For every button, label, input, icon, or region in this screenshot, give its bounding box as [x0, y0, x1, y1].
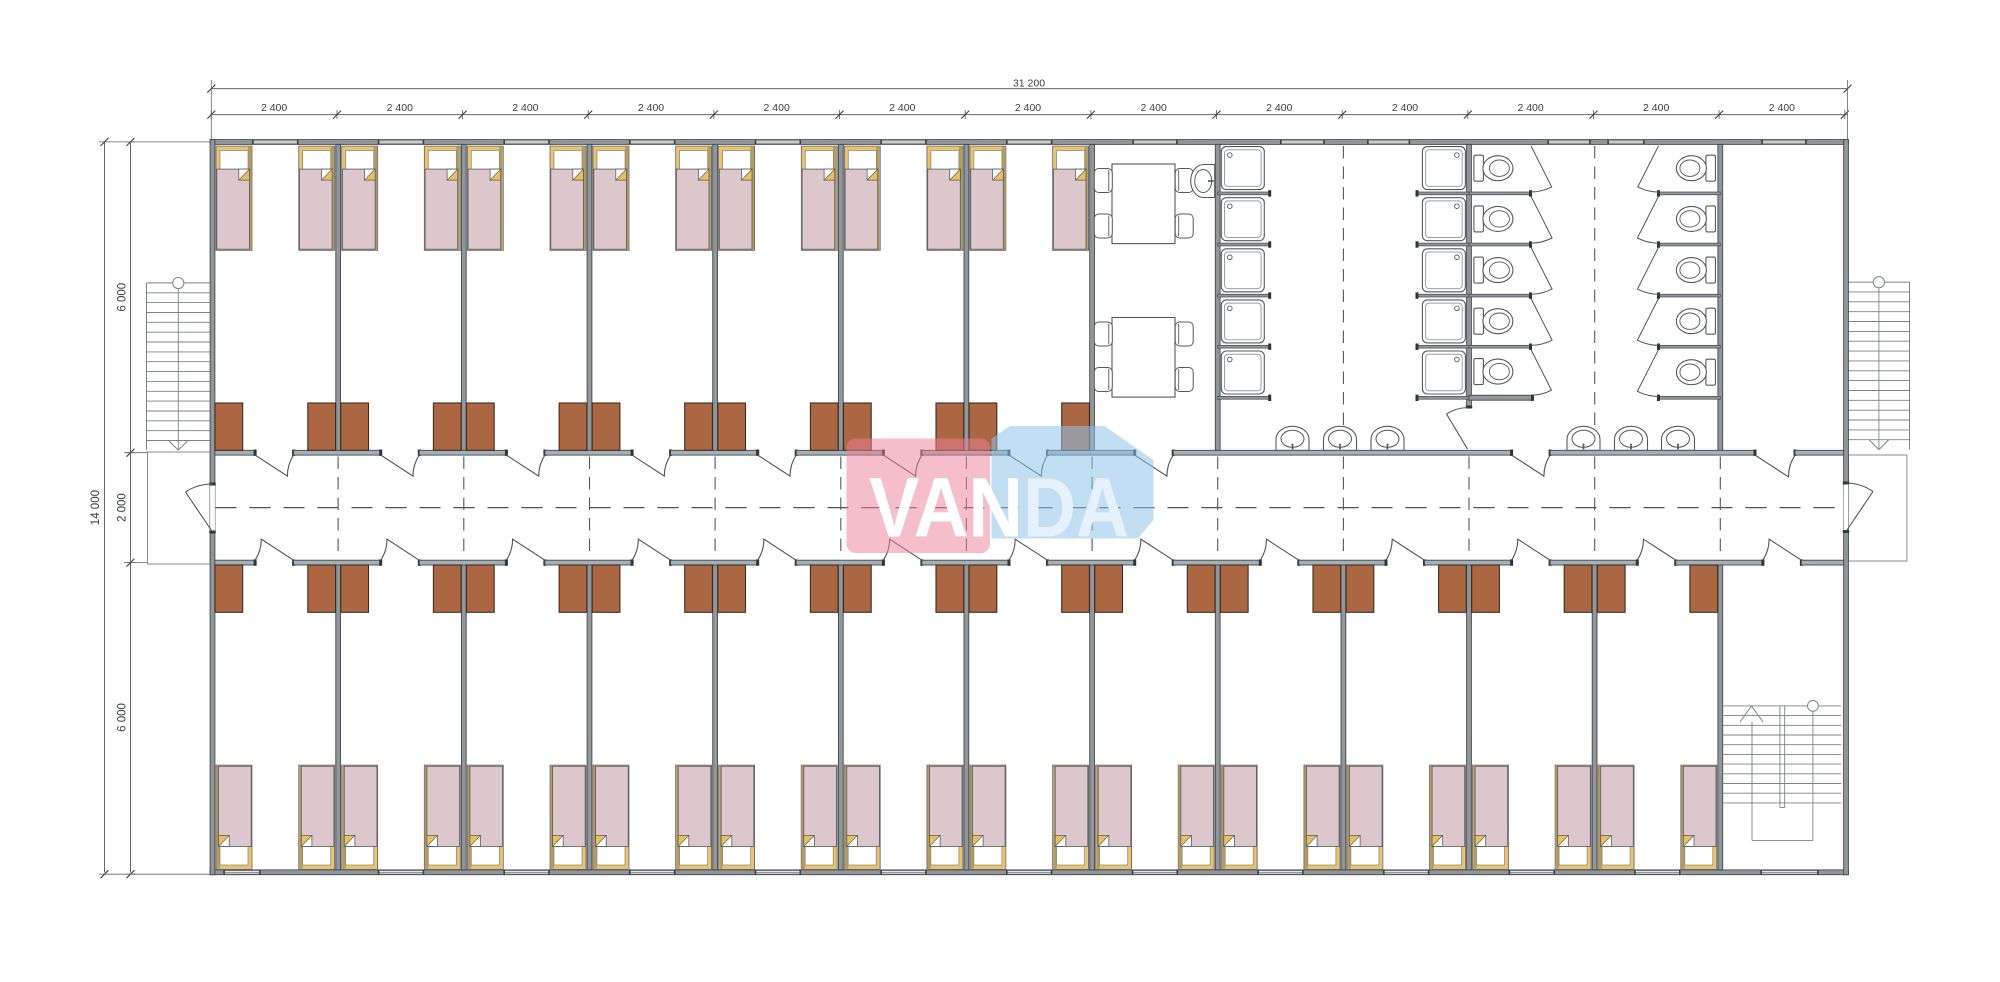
svg-text:2 400: 2 400: [764, 102, 790, 114]
svg-text:2 400: 2 400: [1769, 102, 1795, 114]
svg-text:2 400: 2 400: [512, 102, 538, 114]
svg-text:2 400: 2 400: [1015, 102, 1041, 114]
svg-text:31 200: 31 200: [1013, 78, 1045, 90]
svg-text:2 400: 2 400: [387, 102, 413, 114]
svg-text:2 400: 2 400: [1517, 102, 1543, 114]
svg-text:VAN: VAN: [869, 461, 1023, 555]
svg-text:2 400: 2 400: [1643, 102, 1669, 114]
svg-text:2 400: 2 400: [638, 102, 664, 114]
svg-text:DA: DA: [1023, 461, 1129, 555]
svg-text:2 400: 2 400: [889, 102, 915, 114]
svg-text:14 000: 14 000: [90, 490, 102, 525]
svg-text:2 400: 2 400: [1266, 102, 1292, 114]
svg-text:6 000: 6 000: [116, 283, 128, 312]
svg-text:6 000: 6 000: [116, 703, 128, 732]
svg-text:2 400: 2 400: [1392, 102, 1418, 114]
svg-text:2 400: 2 400: [1141, 102, 1167, 114]
svg-text:2 000: 2 000: [116, 493, 128, 522]
svg-text:2 400: 2 400: [261, 102, 287, 114]
